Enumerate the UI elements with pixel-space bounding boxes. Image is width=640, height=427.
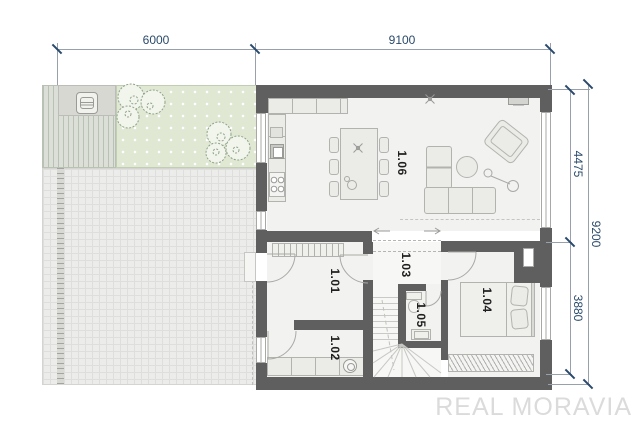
drain-strip [57, 168, 64, 385]
window [541, 287, 551, 340]
wall-segment [256, 281, 267, 337]
wall-segment [398, 284, 426, 291]
paved-driveway [42, 168, 258, 385]
dimension-line [57, 49, 550, 50]
wc-sink [411, 329, 431, 340]
wall-segment [256, 85, 268, 113]
grill-grate [80, 97, 94, 109]
washing-machine [343, 359, 357, 373]
wardrobe-hall [272, 243, 344, 257]
dimension-value-4475: 4475 [571, 151, 585, 178]
chair [379, 181, 389, 197]
dimension-value-9100: 9100 [389, 33, 416, 47]
wall-segment [398, 341, 448, 348]
floor-plan-canvas: 1.01 1.02 1.03 1.04 1.05 1.06 6000 9100 … [0, 0, 640, 427]
room-label-102: 1.02 [328, 335, 342, 360]
stairs-straight-flight [373, 297, 399, 345]
kitchen-counter-top [268, 98, 348, 114]
walkway-dashed-line [252, 270, 253, 385]
wall-segment [441, 280, 448, 360]
sliding-opening-dashed [373, 240, 441, 252]
wall-segment [294, 320, 373, 330]
chair [329, 181, 339, 197]
wall-segment [398, 284, 406, 348]
wall-segment [256, 85, 552, 98]
grill-icon [76, 92, 98, 114]
kitchen-sink [270, 144, 284, 159]
sofa-chaise [426, 146, 452, 189]
door-opening [267, 320, 294, 330]
dimension-value-3880: 3880 [571, 295, 585, 322]
chair [379, 137, 389, 153]
wardrobe-bedroom [448, 354, 534, 372]
ceiling-edge-dashed [400, 219, 540, 220]
wc-sink-basin [414, 331, 429, 339]
wall-segment [256, 163, 267, 211]
window [541, 112, 551, 228]
window [256, 211, 266, 230]
door-opening [441, 252, 448, 280]
room-label-105: 1.05 [414, 302, 428, 327]
dimension-line [570, 90, 571, 374]
extension-line [548, 384, 590, 385]
toilet-cistern [406, 292, 422, 300]
sink-basin [273, 147, 283, 158]
garden-lawn [116, 85, 258, 168]
dimension-value-9200: 9200 [589, 221, 603, 248]
wall-segment [256, 377, 552, 390]
wall-segment [256, 231, 372, 242]
sofa-base [424, 187, 496, 214]
chair [329, 159, 339, 175]
pillow [510, 285, 529, 307]
dimension-value-6000: 6000 [143, 33, 170, 47]
chair [329, 137, 339, 153]
wall-segment [540, 340, 552, 390]
room-label-106: 1.06 [395, 150, 409, 175]
room-label-101: 1.01 [328, 268, 342, 293]
window [256, 337, 266, 363]
entrance-door-opening [256, 253, 267, 281]
coffee-table [456, 156, 478, 178]
wall-niche [523, 248, 534, 267]
microwave [270, 127, 283, 138]
window [256, 113, 266, 163]
bed-sheet-line [506, 282, 507, 337]
chair [379, 159, 389, 175]
door-opening [363, 254, 373, 280]
headboard [531, 282, 535, 337]
watermark-real-moravia: REAL MORAVIA [435, 393, 632, 422]
pillow [510, 308, 529, 330]
dining-table [340, 128, 378, 200]
washer-drum [347, 363, 355, 371]
entrance-step [244, 252, 256, 282]
room-label-103: 1.03 [399, 252, 413, 277]
door-opening [426, 284, 441, 291]
wall-segment [363, 242, 373, 254]
room-label-104: 1.04 [480, 287, 494, 312]
stove [269, 172, 285, 197]
